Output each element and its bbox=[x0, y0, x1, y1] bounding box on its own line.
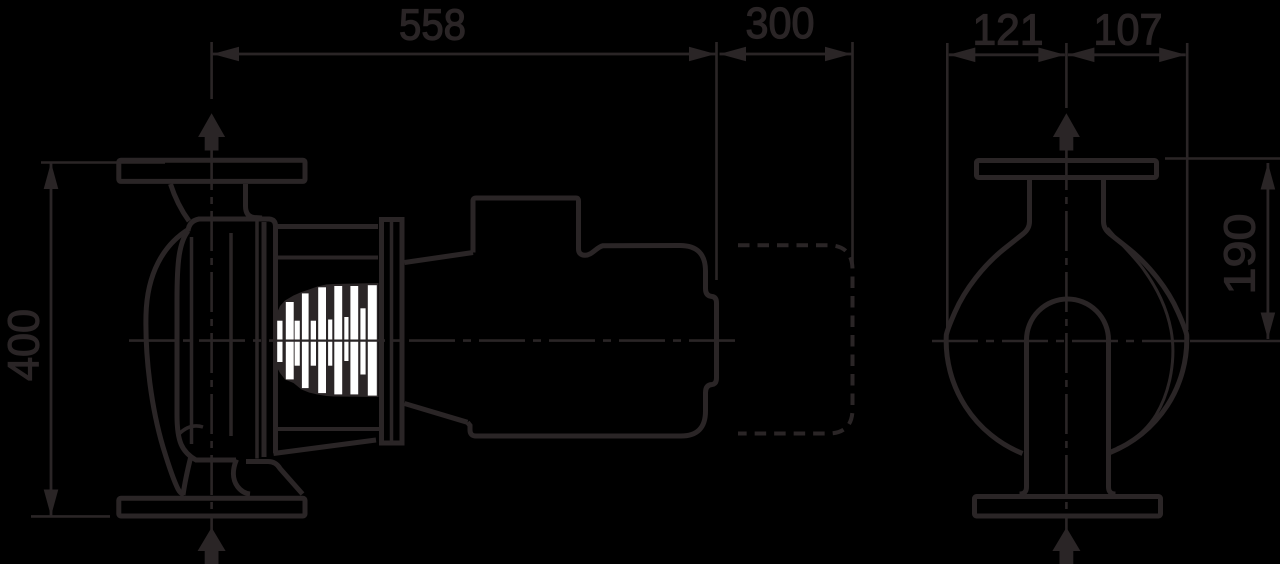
svg-text:190: 190 bbox=[1216, 214, 1265, 295]
svg-text:558: 558 bbox=[399, 0, 466, 49]
svg-text:107: 107 bbox=[1094, 6, 1163, 55]
svg-text:400: 400 bbox=[0, 309, 49, 381]
svg-text:300: 300 bbox=[746, 0, 815, 48]
svg-text:121: 121 bbox=[973, 6, 1044, 55]
